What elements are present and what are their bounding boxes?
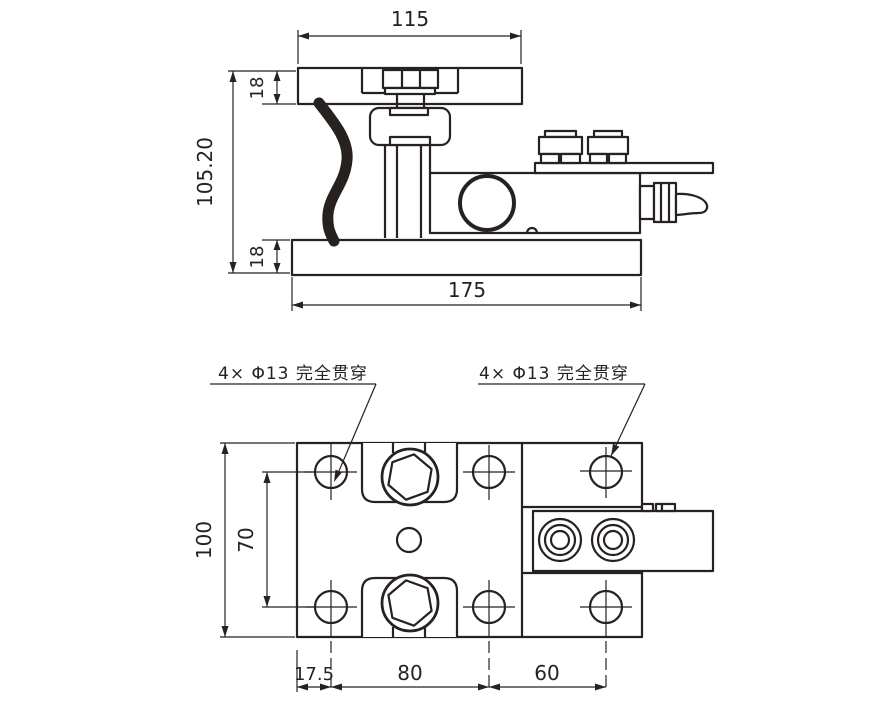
dim-bottom-row: 17.5 80 60 bbox=[294, 641, 606, 692]
dim-115-text: 115 bbox=[391, 7, 429, 31]
center-hole bbox=[397, 528, 421, 552]
dim-105-20-text: 105.20 bbox=[193, 137, 217, 207]
dim-115: 115 bbox=[298, 7, 521, 64]
spacer-collar-top bbox=[390, 108, 428, 115]
connector-cap-1 bbox=[539, 131, 582, 163]
dim-175-text: 175 bbox=[448, 278, 486, 302]
plan-cap-2 bbox=[592, 519, 634, 561]
bolt-washer bbox=[385, 88, 435, 94]
side-view: 115 105.20 18 18 175 bbox=[193, 7, 713, 311]
hole-callout-left-text: 4× Φ13 完全贯穿 bbox=[218, 364, 368, 384]
drawing-svg: 115 105.20 18 18 175 bbox=[0, 0, 878, 711]
dim-80-text: 80 bbox=[397, 661, 422, 685]
load-cell-bore bbox=[460, 176, 514, 230]
plan-gland-tab-3 bbox=[662, 504, 675, 511]
dim-17-5-text: 17.5 bbox=[294, 664, 334, 685]
plan-cap-1 bbox=[539, 519, 581, 561]
plan-view: 4× Φ13 完全贯穿 4× Φ13 完全贯穿 100 70 bbox=[192, 364, 713, 692]
spacer-collar-bottom bbox=[390, 137, 430, 145]
dim-60-text: 60 bbox=[534, 661, 559, 685]
dim-18-bottom-text: 18 bbox=[247, 246, 268, 269]
cable-exit bbox=[676, 194, 707, 215]
bottom-plate bbox=[292, 240, 641, 275]
dim-105-20: 105.20 bbox=[193, 71, 296, 273]
plan-gland-tab-1 bbox=[642, 504, 653, 511]
cable-gland bbox=[640, 183, 707, 222]
connector-cap-2 bbox=[588, 131, 628, 163]
bolt-head bbox=[383, 70, 438, 88]
dim-175: 175 bbox=[292, 277, 641, 311]
cable bbox=[319, 103, 347, 241]
dim-70-text: 70 bbox=[234, 527, 258, 552]
dim-18-bottom: 18 bbox=[247, 240, 290, 273]
dim-100-text: 100 bbox=[192, 521, 216, 559]
connector-plate bbox=[535, 163, 713, 173]
hole-callout-right-text: 4× Φ13 完全贯穿 bbox=[479, 364, 629, 384]
dim-18-top-text: 18 bbox=[247, 77, 268, 100]
dim-18-top: 18 bbox=[247, 71, 296, 104]
technical-drawing: 115 105.20 18 18 175 bbox=[0, 0, 878, 711]
threaded-rod bbox=[385, 145, 430, 238]
